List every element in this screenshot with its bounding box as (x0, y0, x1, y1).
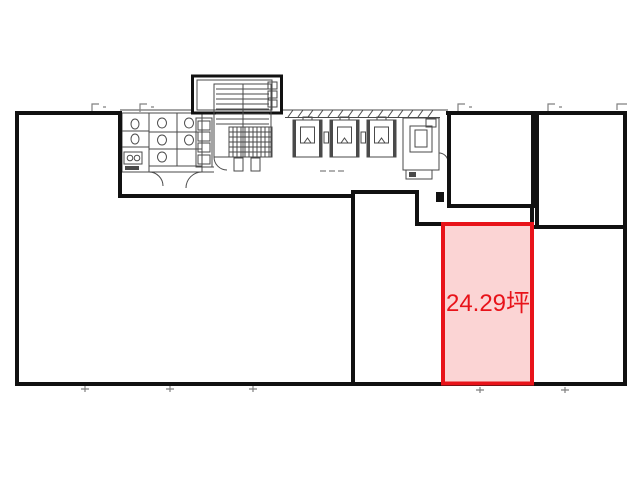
elevator-wall (356, 120, 359, 157)
core-area (120, 76, 448, 202)
floor-plan-page: 24.29坪 (0, 0, 640, 480)
sink-basin-icon (134, 155, 140, 161)
room-top-right-b (537, 113, 625, 227)
grid-bracket-mark (92, 104, 106, 112)
restroom-outline (122, 113, 202, 172)
core-wall-hatch (288, 110, 433, 117)
staircase (193, 76, 282, 171)
elevator-door-marks (377, 117, 386, 143)
elevator-car-icon (301, 127, 315, 143)
grid-bracket-mark (140, 104, 154, 112)
highlighted-unit[interactable]: 24.29坪 (443, 224, 532, 384)
elevator-wall (319, 120, 322, 157)
toilet-fixture-icon (158, 135, 167, 145)
service-car-icon (415, 130, 427, 147)
toilet-fixture-icon (158, 118, 167, 128)
stair-hatch-horizontal (229, 132, 272, 152)
elevator-wall (367, 120, 370, 157)
restroom-partitions (149, 113, 177, 172)
restroom-stall-lines (122, 131, 202, 166)
service-core (403, 118, 448, 179)
bottom-grid-ticks (81, 386, 569, 393)
door-swing-arc (439, 153, 448, 162)
elevator-door-marks (303, 117, 312, 143)
toilet-fixture-icon (185, 118, 194, 128)
room-right-lower (536, 231, 623, 381)
shaft-cell (198, 143, 210, 152)
toilet-fixture-icon (131, 134, 139, 144)
stair-landing-bump (234, 158, 243, 171)
stair-landing-bump (251, 158, 260, 171)
shaft-gap-mark (361, 132, 366, 143)
toilet-fixture-icon (185, 135, 194, 145)
toilet-fixture-icon (158, 152, 167, 162)
elevator-bank (293, 117, 396, 171)
elevator-wall (330, 120, 333, 157)
shaft-cell (198, 121, 210, 130)
shaft-gap-mark (324, 132, 329, 143)
restroom-area (122, 113, 214, 188)
room-top-right-a (449, 113, 533, 206)
elevator-door-marks (340, 117, 349, 143)
unit-area-label: 24.29坪 (446, 290, 530, 317)
elevator-car-icon (338, 127, 352, 143)
door-swing-arcs (149, 172, 202, 188)
service-tab-fill (409, 172, 416, 177)
grid-bracket-mark (617, 104, 627, 110)
elevator-wall (393, 120, 396, 157)
floor-plan-drawing: 24.29坪 (0, 0, 640, 480)
utility-block (125, 166, 139, 170)
shaft-cell (198, 132, 210, 141)
grid-bracket-mark (458, 104, 472, 112)
elevator-wall (293, 120, 296, 157)
sink-basin-icon (127, 155, 133, 161)
grid-bracket-mark (548, 104, 562, 112)
column-mark (436, 192, 444, 202)
shaft-cell (198, 155, 210, 164)
middle-room-wall (353, 192, 443, 384)
toilet-fixture-icon (131, 119, 139, 129)
room-left (19, 115, 351, 381)
elevator-car-icon (375, 127, 389, 143)
